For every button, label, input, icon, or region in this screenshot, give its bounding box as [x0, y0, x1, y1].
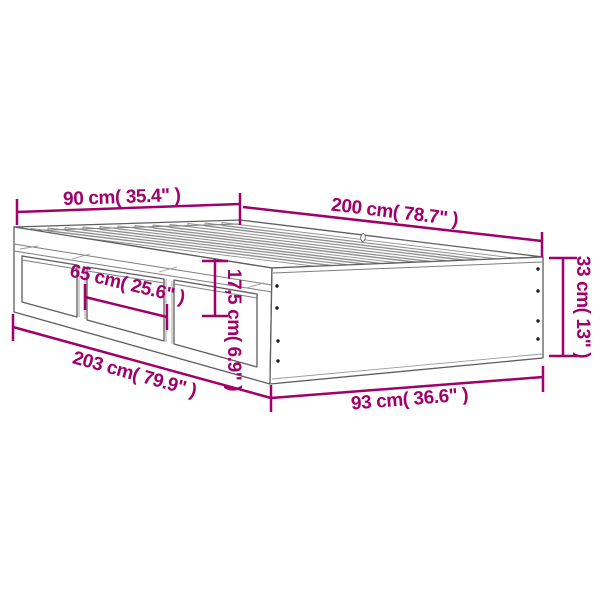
screw-hole: [536, 319, 539, 322]
screw-hole: [536, 267, 539, 270]
bed-frame-dimension-diagram: 90 cm( 35.4" ) 200 cm( 78.7" ) 33 cm( 13…: [0, 0, 600, 600]
screw-hole: [536, 289, 539, 292]
screw-hole: [275, 306, 278, 309]
front-face: [270, 257, 543, 384]
screw-hole: [276, 339, 279, 342]
diagram-canvas: 90 cm( 35.4" ) 200 cm( 78.7" ) 33 cm( 13…: [0, 0, 600, 600]
dimension-head-width: 90 cm( 35.4" ): [17, 185, 240, 225]
rail-hole: [360, 233, 366, 241]
screw-hole: [276, 359, 279, 362]
screw-hole: [275, 284, 278, 287]
dimension-frame-height: 33 cm( 13" ): [549, 256, 593, 359]
dimension-label: 93 cm( 36.6" ): [350, 384, 469, 414]
dimension-label: 90 cm( 35.4" ): [63, 185, 181, 210]
screw-hole: [536, 337, 539, 340]
dimension-label: 17,5 cm( 6.9" ): [223, 269, 244, 391]
dimension-label: 33 cm( 13" ): [572, 256, 593, 359]
